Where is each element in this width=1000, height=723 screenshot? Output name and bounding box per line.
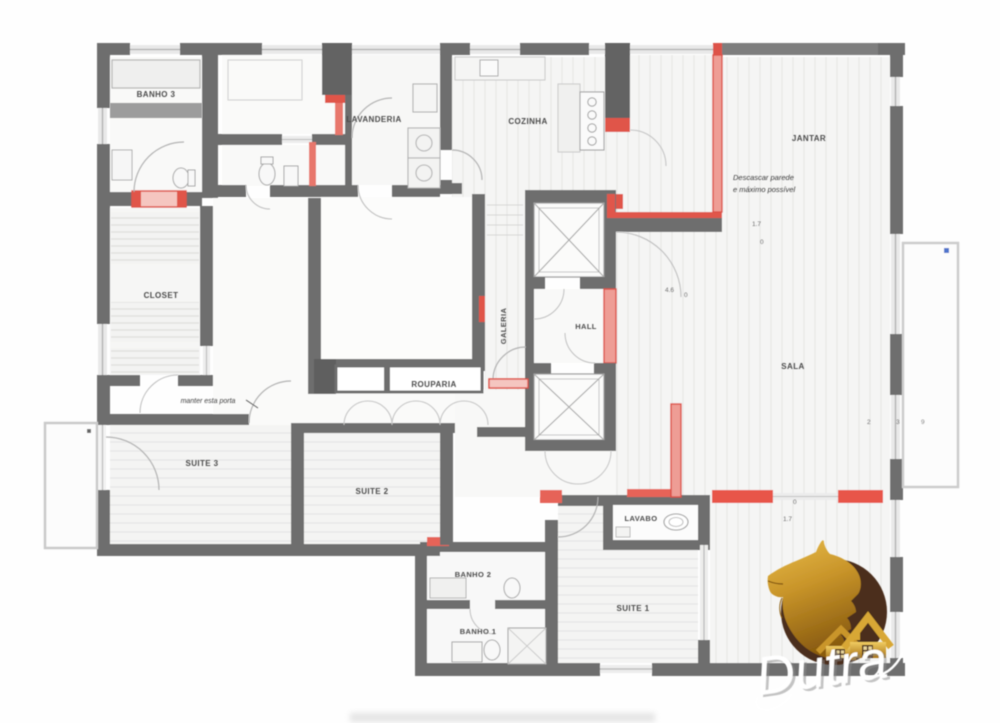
svg-text:e máximo possível: e máximo possível — [733, 185, 795, 194]
svg-text:ROUPARIA: ROUPARIA — [411, 380, 456, 389]
svg-text:9: 9 — [921, 419, 925, 426]
svg-text:Descascar parede: Descascar parede — [733, 173, 794, 182]
svg-text:0: 0 — [793, 499, 797, 506]
svg-text:1.7: 1.7 — [783, 516, 792, 523]
svg-text:SALA: SALA — [781, 362, 804, 371]
svg-text:3: 3 — [896, 419, 900, 426]
svg-text:HALL: HALL — [575, 322, 597, 331]
svg-text:COZINHA: COZINHA — [508, 117, 547, 126]
svg-text:BANHO 3: BANHO 3 — [137, 90, 176, 99]
svg-text:BANHO 1: BANHO 1 — [460, 627, 497, 636]
svg-text:LAVANDERIA: LAVANDERIA — [346, 115, 401, 124]
svg-text:0: 0 — [760, 239, 764, 246]
svg-text:1.7: 1.7 — [752, 221, 761, 228]
svg-text:JANTAR: JANTAR — [792, 134, 826, 143]
svg-text:0: 0 — [684, 292, 688, 299]
svg-text:2: 2 — [867, 419, 871, 426]
svg-text:manter esta porta: manter esta porta — [181, 398, 236, 405]
svg-text:SUITE 3: SUITE 3 — [185, 459, 218, 468]
svg-text:CLOSET: CLOSET — [144, 291, 179, 300]
svg-text:LAVABO: LAVABO — [625, 514, 658, 523]
svg-text:SUITE 2: SUITE 2 — [355, 487, 388, 496]
svg-text:SUITE 1: SUITE 1 — [616, 604, 649, 613]
svg-text:4.6: 4.6 — [665, 287, 674, 294]
svg-text:BANHO 2: BANHO 2 — [455, 570, 492, 579]
svg-text:GALERIA: GALERIA — [499, 308, 508, 345]
